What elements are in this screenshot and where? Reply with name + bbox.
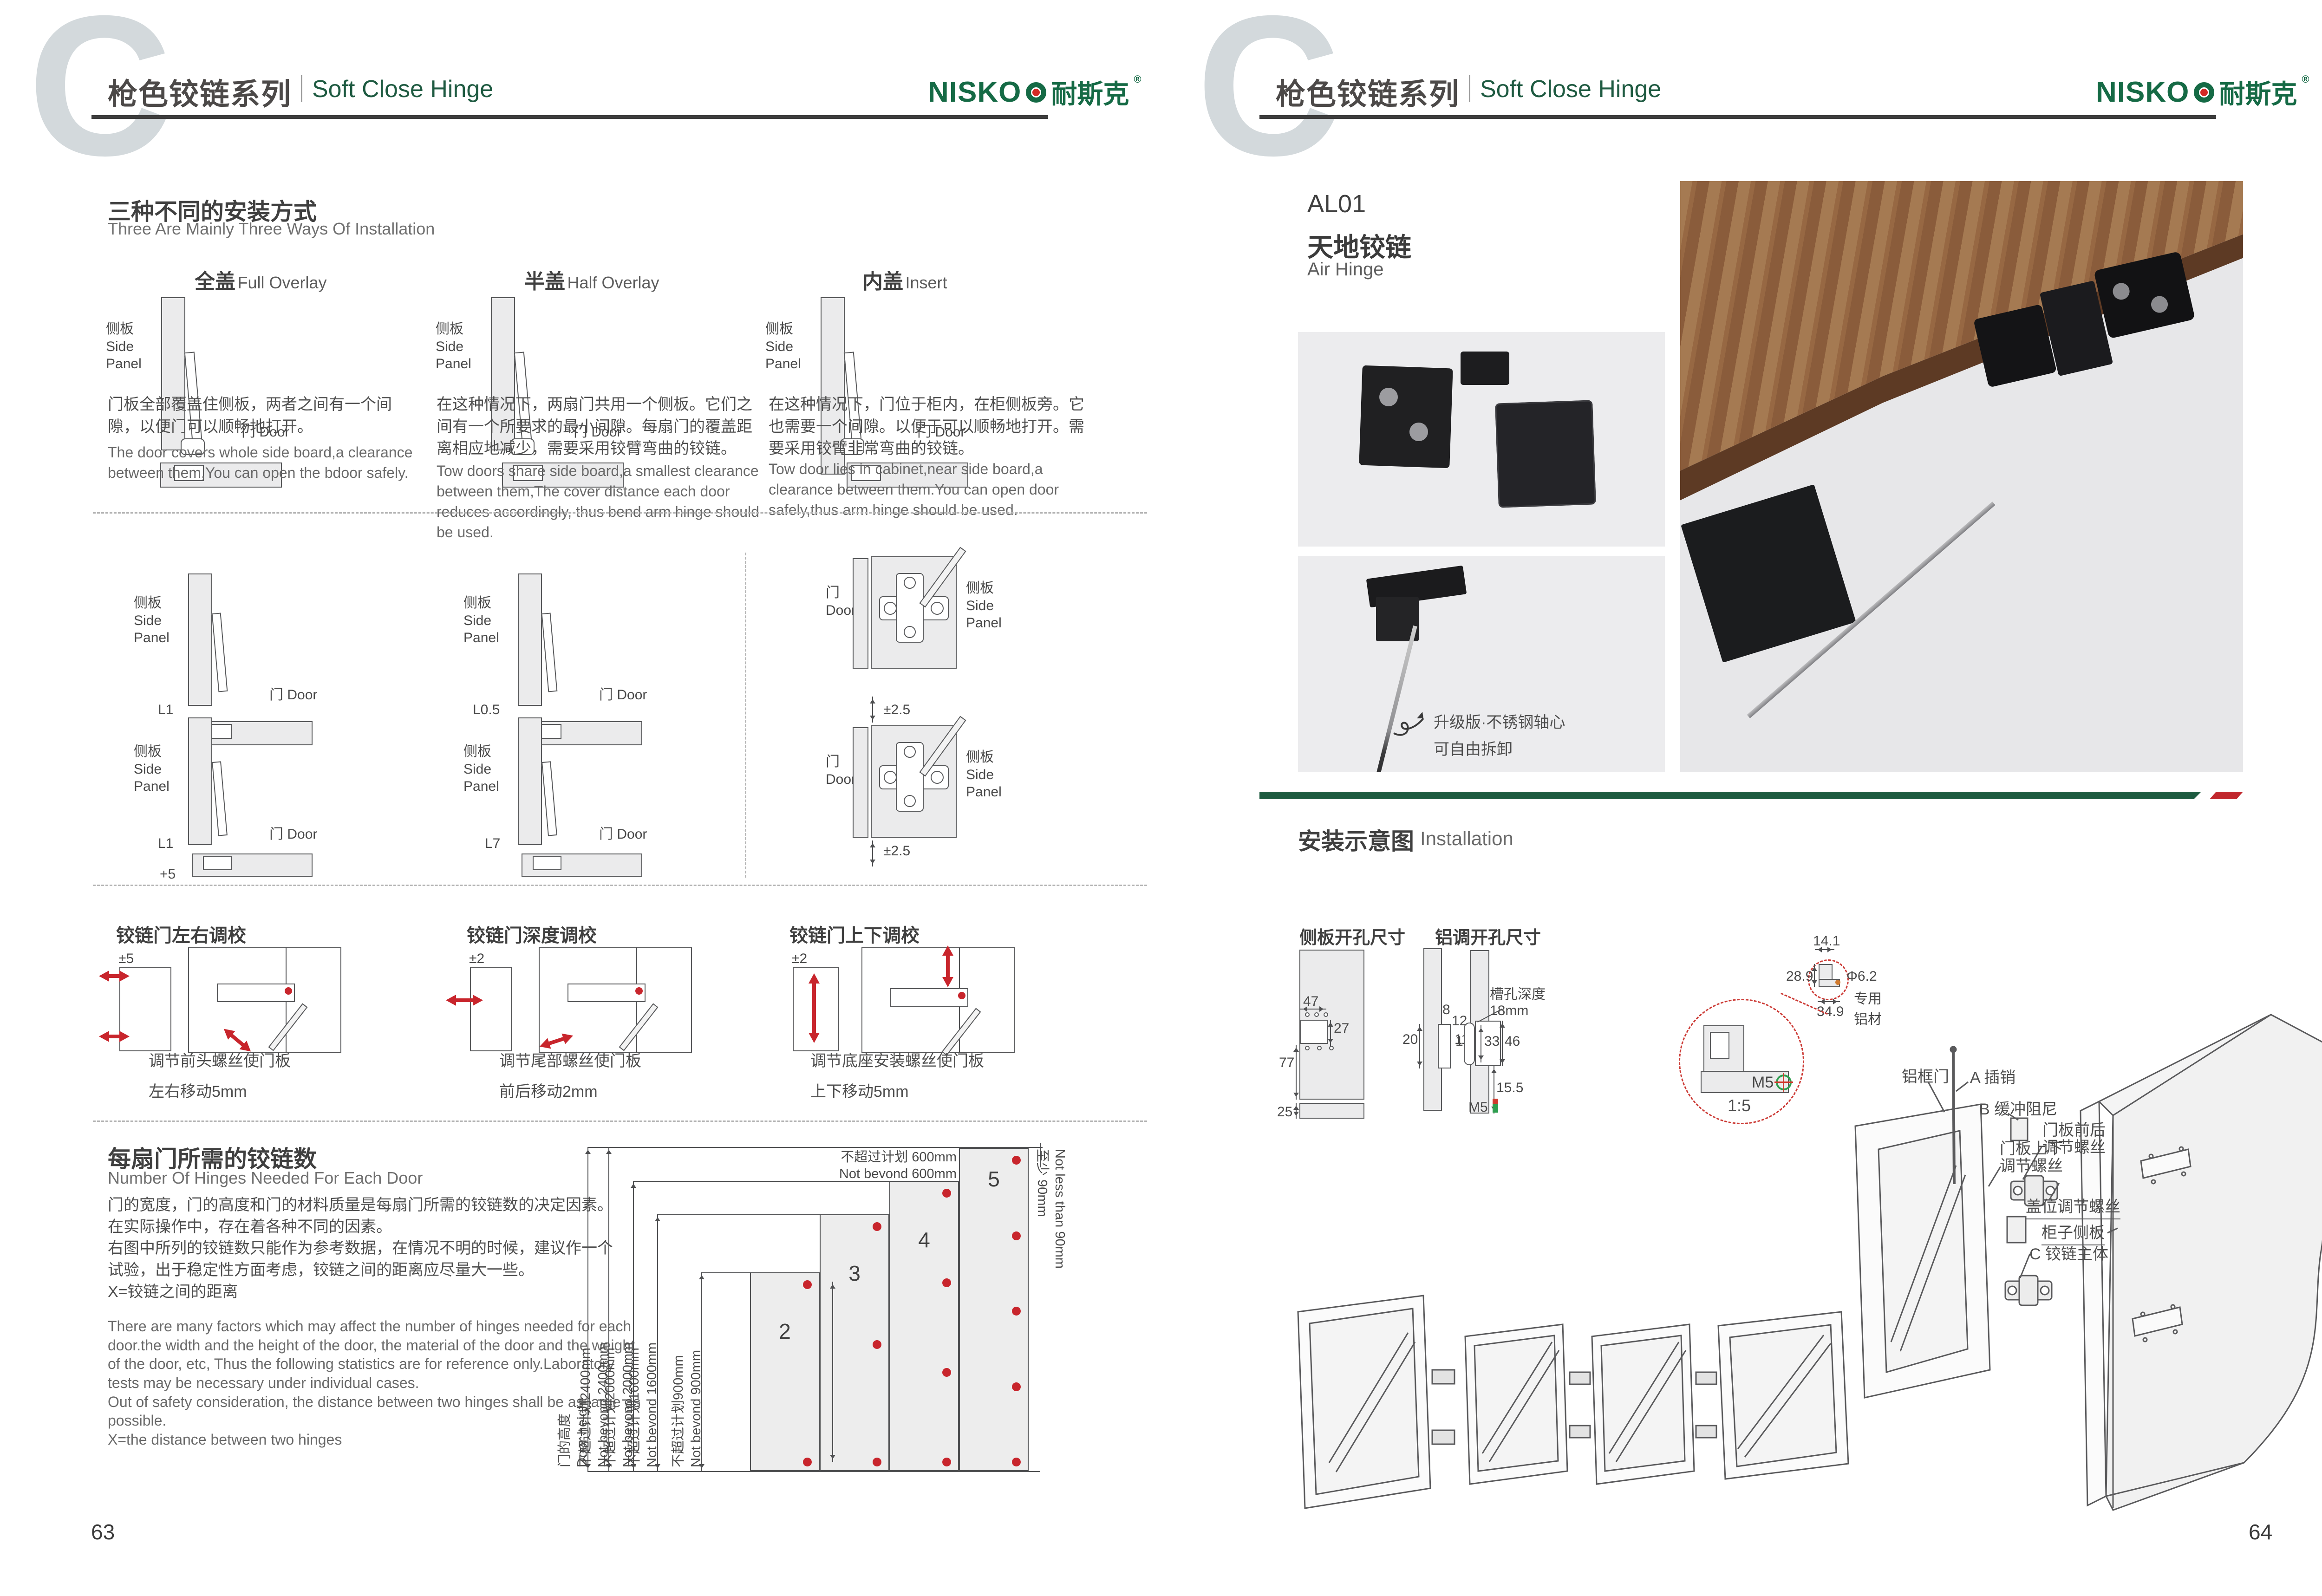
page-number-left: 63 (91, 1519, 115, 1544)
pin-hole-dot (1835, 980, 1840, 985)
side-panel-label: 侧板SidePanel (134, 594, 170, 647)
hinge-body-drawing (217, 984, 295, 1002)
adjust3-title: 铰链门上下调校 (789, 920, 920, 947)
product-name-en: Air Hinge (1307, 259, 1384, 280)
side-panel-drawing (518, 573, 542, 706)
label-alu-door: 铝框门 (1902, 1066, 1949, 1088)
label-c-body: C 铰链主体 (2029, 1244, 2108, 1266)
col1-desc-en: The door covers whole side board,a clear… (108, 442, 428, 483)
cup-recess (533, 856, 561, 870)
adjust-screw-dot (635, 987, 643, 995)
page-subtitle: Soft Close Hinge (1480, 75, 1661, 103)
page-title: 枪色铰链系列 (108, 71, 292, 113)
chart-ref-line (701, 1272, 750, 1273)
page-title: 枪色铰链系列 (1276, 71, 1460, 113)
chart-dim-label: 不超过计划900mmNot bevond 900mm (670, 1350, 705, 1467)
chart-door-bar (889, 1181, 959, 1471)
col2-desc-cn: 在这种情况下，两扇门共用一个侧板。它们之间有一个所要求的最小间隙。每扇门的覆盖距… (437, 394, 752, 460)
side-panel-drawing (518, 717, 542, 845)
hinge-cover-photo (1495, 400, 1596, 508)
screw-icon (931, 602, 944, 615)
dim-L05: L0.5 (473, 702, 500, 718)
hinge-position-dot (1012, 1458, 1021, 1466)
chart-door-bar (750, 1272, 820, 1471)
adjust1-diagram: ±5 (118, 947, 337, 1053)
dim-line (872, 840, 873, 866)
chart-ref-line (633, 1181, 889, 1182)
accent-bar-green (1259, 792, 2201, 799)
screw-icon (884, 771, 897, 784)
product-photo-pin: 升级版·不锈钢轴心 可自由拆卸 (1298, 556, 1665, 772)
brand-latin: NISKO (928, 76, 1021, 109)
col3-desc-en: Tow door lies in cabinet,near side board… (769, 459, 1094, 520)
adjust2-title: 铰链门深度调校 (467, 920, 597, 947)
divider (93, 885, 1147, 886)
drawing2-title: 铝调开孔尺寸 (1435, 923, 1541, 949)
hinge-arm-drawing (541, 761, 557, 836)
door-label: 门 Door (269, 686, 317, 704)
catalog-spread: C 枪色铰链系列 Soft Close Hinge NISKO 耐斯克 ® 三种… (0, 0, 2322, 1596)
hinge-position-dot (942, 1278, 951, 1287)
screw-icon (904, 577, 916, 589)
divider (93, 512, 1147, 514)
dim-L1: L1 (158, 702, 173, 718)
side-panel-drawing (188, 573, 212, 706)
product-photo-parts (1298, 332, 1665, 547)
divider (93, 1120, 1147, 1122)
dim-line (872, 697, 873, 723)
side-panel-label: 侧板SidePanel (463, 743, 499, 795)
range-label: ±5 (118, 951, 134, 967)
hinge-position-dot (1012, 1382, 1021, 1391)
hinge-arm-drawing (212, 612, 228, 692)
hinges-desc-cn: 门的宽度，门的高度和门的材料质量是每扇门所需的铰链数的决定因素。 在实际操作中，… (108, 1197, 613, 1300)
door-label: 门Door (826, 584, 856, 619)
hinge-position-dot (942, 1368, 951, 1377)
adjust2-diagram: ±2 (469, 947, 687, 1053)
chart-hinge-count: 2 (755, 1319, 815, 1344)
side-panel-drawing (188, 717, 212, 845)
hinge-position-dot (873, 1340, 881, 1349)
cup-recess (203, 856, 232, 870)
chart-edge-note: Not less than 90mm至少 90mm (1033, 1149, 1069, 1269)
registered-mark: ® (1134, 73, 1141, 85)
adjust3-diagram: ±2 (792, 947, 1010, 1053)
up-down-arrow-icon (946, 950, 950, 983)
hinge-position-dot (873, 1222, 881, 1231)
dim-L7: L7 (485, 836, 500, 852)
chart-ref-line (587, 1147, 1043, 1148)
hinge-position-dot (1012, 1231, 1021, 1240)
product-photo-installed (1680, 181, 2243, 772)
screw-photo (1379, 388, 1398, 406)
chart-ref-line (587, 1471, 1040, 1472)
hinge-body-drawing (567, 984, 646, 1002)
screw-photo (1409, 423, 1428, 441)
hinges-title-en: Number Of Hinges Needed For Each Door (108, 1168, 423, 1188)
x-distance-arrow (832, 1282, 833, 1462)
title-separator (301, 75, 302, 102)
side-panel-label: 侧板SidePanel (463, 594, 499, 647)
hinge-position-dot (873, 1458, 881, 1466)
door-drawing (470, 967, 512, 1051)
label-cover-screw: 盖位调节螺丝 (2026, 1196, 2120, 1219)
side-panel-label: 侧板SidePanel (966, 580, 1002, 632)
range-label: ±2 (792, 951, 807, 967)
depth-arrow-icon (450, 998, 478, 1002)
hinge-position-dot (803, 1280, 812, 1289)
screw-icon (904, 746, 916, 758)
screw-icon (931, 771, 944, 784)
col2-header: 半盖 Half Overlay (524, 265, 659, 294)
left-right-arrow-icon (104, 974, 125, 978)
hinge-plate-pad-photo (1681, 484, 1856, 663)
dim-line (1815, 949, 1834, 950)
side-panel-label: 侧板SidePanel (106, 320, 142, 373)
hinge-position-dot (1012, 1156, 1021, 1165)
hinge-count-chart: 不超过计划 600mmNot bevond 600mm Not less tha… (583, 1142, 1075, 1481)
chart-width-note: 不超过计划 600mmNot bevond 600mm (817, 1149, 957, 1182)
header-rule (91, 115, 1048, 119)
hinge-position-dot (942, 1189, 951, 1198)
photo-note: 升级版·不锈钢轴心 可自由拆卸 (1434, 712, 1565, 761)
dim-289: 28.9 (1786, 969, 1813, 984)
label-cabinet-side: 柜子侧板 (2042, 1222, 2105, 1245)
door-label: 门Door (826, 753, 856, 788)
brand-logo: NISKO 耐斯克 ® (928, 73, 1141, 111)
door-edge-drawing (853, 558, 868, 669)
side-panel-label: 侧板SidePanel (966, 749, 1002, 801)
brand-ring-icon (2194, 82, 2214, 103)
chart-hinge-count: 4 (894, 1227, 954, 1252)
label-ud-screw: 门板上下调节螺丝 (2000, 1140, 2063, 1175)
side-panel-label: 侧板SidePanel (765, 320, 801, 373)
col3-desc-cn: 在这种情况下，门位于柜内，在柜侧板旁。它也需要一个间隙。以便于可以顺畅地打开。需… (769, 394, 1098, 460)
exploded-diagram-svg (1259, 994, 2322, 1523)
side-panel-label: 侧板SidePanel (436, 320, 471, 373)
col1-header: 全盖 Full Overlay (195, 265, 327, 294)
dim-line (1814, 964, 1815, 987)
dim-L1b: L1 (158, 836, 173, 852)
hinge-arm-drawing (541, 612, 558, 692)
col1-desc-cn: 门板全部覆盖住侧板，两者之间有一个间隙，以便门可以顺畅地打开。 (108, 394, 414, 438)
dim-dia: Φ6.2 (1846, 969, 1877, 984)
ways-title-en: Three Are Mainly Three Ways Of Installat… (108, 219, 435, 239)
adjust1-caption: 调节前头螺丝使门板左右移动5mm (149, 1050, 291, 1103)
product-code: AL01 (1307, 189, 1366, 218)
dim-plate-top: ±2.5 (883, 702, 910, 718)
drawing1-title: 侧板开孔尺寸 (1299, 923, 1405, 949)
hinge-position-dot (942, 1458, 951, 1466)
install-title-en: Installation (1420, 827, 1513, 850)
hinge-position-dot (1012, 1307, 1021, 1316)
dim-plate-bottom: ±2.5 (883, 843, 910, 859)
curly-arrow-icon (1391, 704, 1433, 742)
label-b-damper: B 缓冲阻尼 (1979, 1099, 2057, 1121)
adjust3-caption: 调节底座安装螺丝使门板上下移动5mm (810, 1050, 984, 1103)
brand-cn: 耐斯克 (1051, 73, 1129, 111)
title-separator (1469, 75, 1470, 102)
adjust-screw-dot (958, 992, 965, 999)
door-label: 门 Door (269, 826, 317, 843)
page-subtitle: Soft Close Hinge (312, 75, 493, 103)
divider-vertical (745, 553, 746, 878)
hinge-arm-drawing (212, 761, 228, 836)
door-label: 门 Door (599, 826, 647, 843)
door-edge-drawing (853, 727, 868, 838)
header-rule (1259, 115, 2216, 119)
hinge-position-dot (803, 1458, 812, 1466)
screw-icon (904, 795, 916, 807)
side-panel-label: 侧板SidePanel (134, 743, 170, 795)
range-label: ±2 (469, 951, 484, 967)
install-title-cn: 安装示意图 (1298, 823, 1414, 856)
dim-plus5: +5 (160, 866, 176, 882)
label-a-pin: A 插销 (1970, 1067, 2015, 1089)
hinge-clip-photo (1461, 352, 1509, 385)
adjust1-title: 铰链门左右调校 (116, 920, 246, 947)
left-right-arrow-icon (104, 1035, 125, 1038)
up-down-arrow-icon (812, 978, 816, 1038)
door-label: 门 Door (599, 686, 647, 704)
adjust-screw-dot (285, 987, 292, 995)
product-name-cn: 天地铰链 (1307, 227, 1411, 264)
brand-logo: NISKO 耐斯克 ® (2096, 73, 2309, 111)
adjust2-caption: 调节尾部螺丝使门板前后移动2mm (499, 1050, 641, 1103)
hinge-body-drawing (890, 988, 968, 1007)
screw-icon (884, 602, 897, 615)
hinge-plate-photo (1359, 365, 1453, 469)
col2-desc-en: Tow doors share side board,a smallest cl… (437, 461, 762, 543)
screw-icon (904, 626, 916, 638)
accent-bar-red (2210, 792, 2243, 799)
brand-ring-icon (1026, 82, 1046, 103)
chart-dim-label: 不超过计划1600mmNot bevond 1600mm (626, 1342, 661, 1467)
chart-hinge-count: 5 (964, 1166, 1024, 1192)
chart-ref-line (657, 1214, 820, 1215)
col3-header: 内盖 Insert (862, 265, 947, 294)
stainless-pin-photo (1376, 625, 1417, 772)
page-number-right: 64 (2249, 1519, 2272, 1544)
